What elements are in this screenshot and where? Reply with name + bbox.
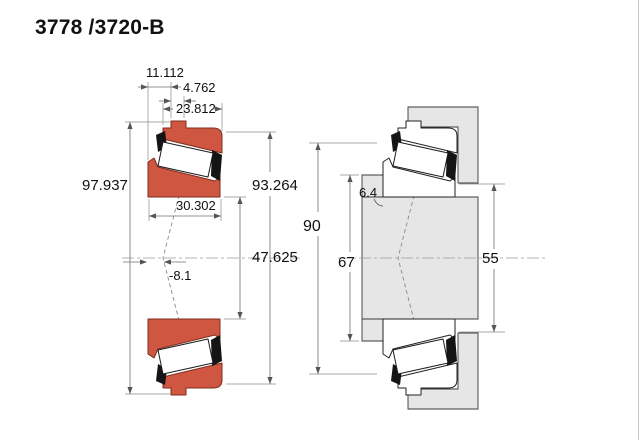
dim-outer-diameter: 93.264 xyxy=(252,177,298,194)
arrowhead xyxy=(347,334,352,341)
arrowhead xyxy=(149,213,156,218)
datasheet-page: 3778 /3720-B xyxy=(0,0,640,440)
dim-flange-od: 97.937 xyxy=(82,177,128,194)
dim-overall-width: 30.302 xyxy=(176,198,216,213)
arrowhead xyxy=(163,106,170,111)
arrowhead xyxy=(491,325,496,332)
dim-housing-bore: 90 xyxy=(303,218,321,235)
dim-flange-offset: 11.112 xyxy=(146,65,184,80)
arrowhead xyxy=(140,259,147,264)
arrowhead xyxy=(215,106,222,111)
arrowhead xyxy=(267,377,272,384)
technical-drawing: 11.112 4.762 23.812 97.937 93.264 xyxy=(0,0,640,440)
dim-effective-center: -8.1 xyxy=(169,268,191,283)
dim-fillet-radius: 6.4 xyxy=(359,185,377,200)
arrowhead xyxy=(127,122,132,129)
arrowhead xyxy=(171,84,178,89)
left-section-view: 11.112 4.762 23.812 97.937 93.264 xyxy=(82,65,300,395)
arrowhead xyxy=(491,184,496,191)
arrowhead xyxy=(315,143,320,150)
dim-bore-diameter: 47.625 xyxy=(252,249,298,266)
dim-flange-width: 4.762 xyxy=(183,80,216,95)
arrowhead xyxy=(164,259,171,264)
right-mounted-view: 90 67 6.4 55 xyxy=(303,107,548,409)
arrowhead xyxy=(315,367,320,374)
arrowhead xyxy=(214,213,221,218)
backing-collar-bottom xyxy=(362,319,383,341)
arrowhead xyxy=(347,175,352,182)
dim-shaft-backing-od: 55 xyxy=(482,250,499,267)
arrowhead xyxy=(237,312,242,319)
arrowhead xyxy=(237,197,242,204)
dim-cup-width: 23.812 xyxy=(176,101,216,116)
arrowhead xyxy=(127,387,132,394)
arrowhead xyxy=(164,98,171,103)
arrowhead xyxy=(267,132,272,139)
dim-backing-ring-od: 67 xyxy=(338,254,355,271)
arrowhead xyxy=(141,84,148,89)
